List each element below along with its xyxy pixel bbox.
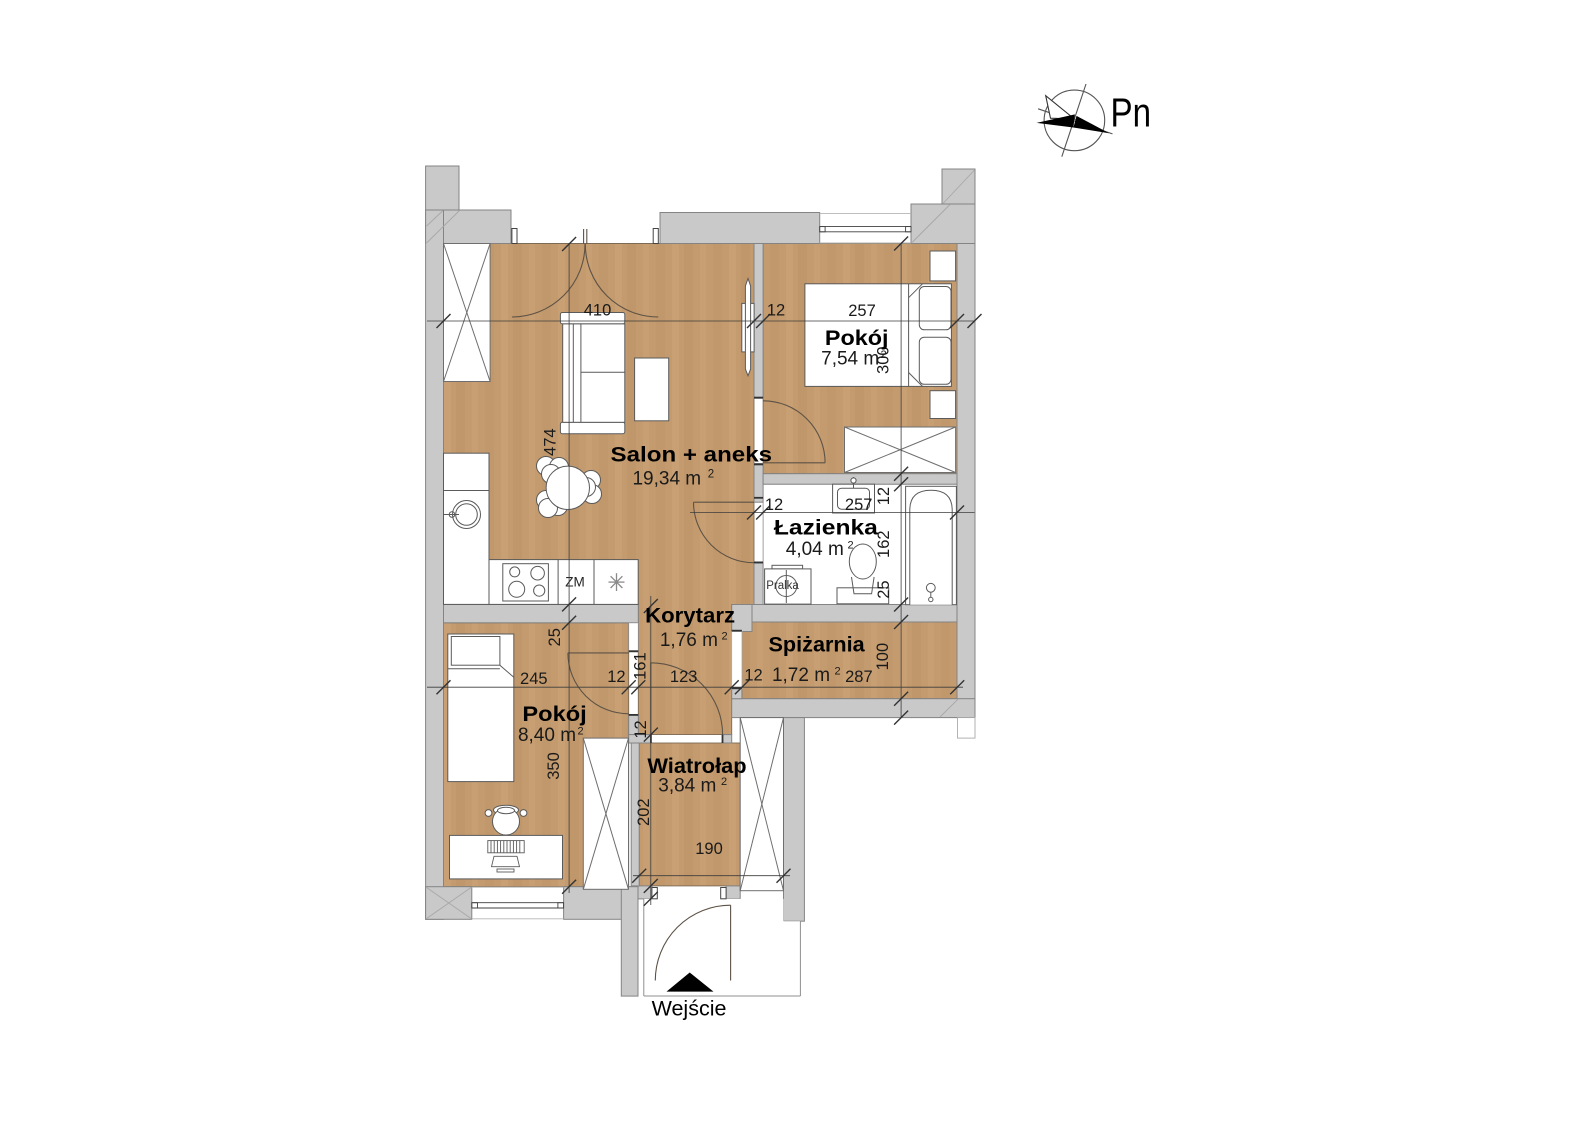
svg-text:Pokój: Pokój: [825, 326, 889, 350]
svg-text:2: 2: [577, 725, 583, 737]
svg-text:Salon + aneks: Salon + aneks: [611, 443, 773, 467]
svg-text:Pralka: Pralka: [766, 580, 799, 592]
svg-text:2: 2: [721, 776, 727, 788]
svg-text:190: 190: [695, 840, 723, 858]
svg-text:2: 2: [880, 349, 886, 361]
svg-text:245: 245: [520, 670, 548, 688]
svg-text:19,34 m: 19,34 m: [632, 469, 701, 490]
svg-text:25: 25: [546, 628, 564, 646]
svg-text:ZM: ZM: [565, 574, 585, 589]
svg-text:100: 100: [874, 643, 892, 671]
svg-text:1,76 m: 1,76 m: [660, 630, 718, 651]
svg-text:3,84 m: 3,84 m: [658, 775, 716, 796]
svg-text:Pn: Pn: [1111, 89, 1152, 135]
svg-text:12: 12: [607, 668, 625, 686]
svg-text:410: 410: [584, 302, 612, 320]
svg-text:8,40 m: 8,40 m: [518, 725, 576, 746]
svg-text:12: 12: [767, 302, 785, 320]
svg-text:257: 257: [848, 302, 876, 320]
svg-text:2: 2: [708, 469, 714, 481]
svg-text:2: 2: [721, 630, 727, 642]
svg-text:Korytarz: Korytarz: [645, 604, 735, 628]
svg-text:350: 350: [545, 752, 563, 780]
svg-text:12: 12: [632, 720, 650, 738]
svg-text:202: 202: [635, 798, 653, 826]
svg-text:1,72 m: 1,72 m: [772, 665, 830, 686]
svg-text:257: 257: [845, 496, 873, 514]
svg-text:12: 12: [765, 496, 783, 514]
svg-text:474: 474: [541, 428, 559, 456]
svg-text:161: 161: [632, 652, 650, 680]
svg-text:Łazienka: Łazienka: [774, 515, 879, 539]
svg-text:4,04 m: 4,04 m: [786, 539, 844, 560]
svg-text:Spiżarnia: Spiżarnia: [769, 633, 866, 657]
svg-text:Wejście: Wejście: [652, 997, 727, 1021]
svg-text:123: 123: [670, 668, 698, 686]
svg-text:2: 2: [835, 666, 841, 678]
svg-text:25: 25: [875, 580, 893, 598]
svg-text:287: 287: [845, 668, 873, 686]
svg-text:Wiatrołap: Wiatrołap: [647, 754, 746, 778]
svg-text:2: 2: [847, 540, 853, 552]
svg-text:12: 12: [875, 487, 893, 505]
svg-text:Pokój: Pokój: [522, 702, 586, 726]
svg-text:7,54 m: 7,54 m: [821, 349, 879, 370]
svg-text:12: 12: [744, 667, 762, 685]
